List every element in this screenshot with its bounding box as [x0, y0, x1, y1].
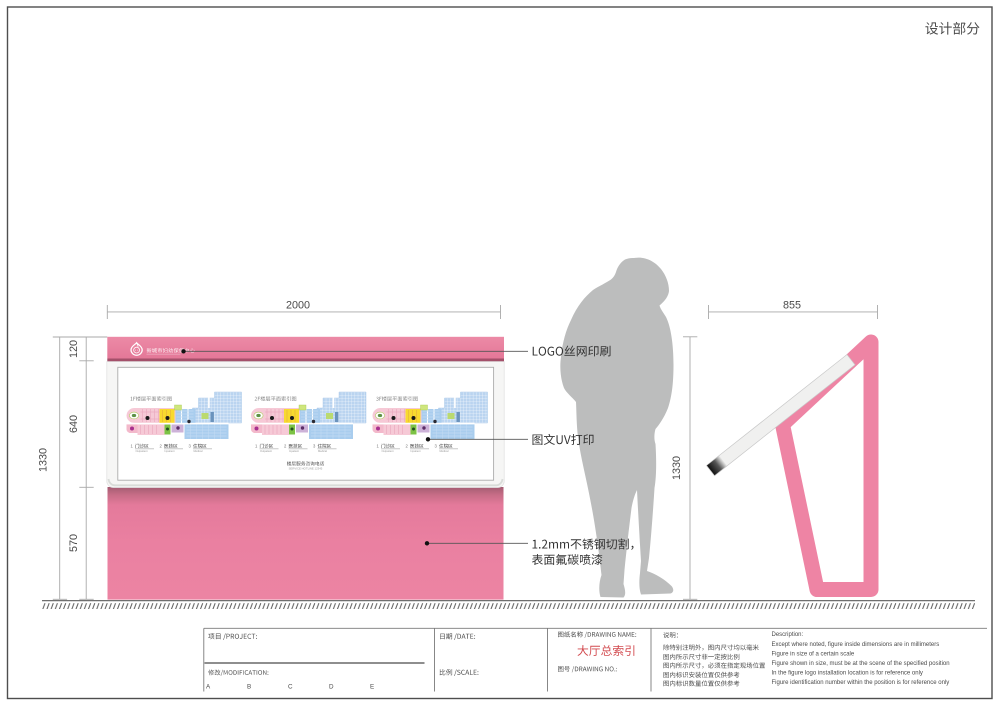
svg-text:Description:: Description: — [772, 632, 804, 638]
svg-text:2000: 2000 — [286, 300, 310, 312]
svg-text:Medical: Medical — [440, 449, 449, 453]
svg-text:Figure in size of a certain sc: Figure in size of a certain scale — [772, 652, 855, 658]
svg-text:855: 855 — [783, 300, 801, 312]
svg-text:1330: 1330 — [671, 456, 683, 480]
svg-text:Except where noted, figure ins: Except where noted, figure inside dimens… — [772, 642, 940, 648]
svg-text:SERVICE HOTLINE 12345: SERVICE HOTLINE 12345 — [289, 466, 323, 470]
svg-text:Figure shown in size, must be: Figure shown in size, must be at the sce… — [772, 661, 950, 667]
svg-text:Outpatient: Outpatient — [382, 449, 394, 453]
svg-text:640: 640 — [68, 415, 80, 433]
svg-text:Figure identification number w: Figure identification number within the … — [772, 680, 950, 686]
svg-text:B: B — [247, 683, 251, 690]
svg-text:Medical: Medical — [318, 449, 327, 453]
svg-text:570: 570 — [68, 534, 80, 552]
svg-text:Outpatient: Outpatient — [136, 449, 148, 453]
svg-text:1330: 1330 — [38, 448, 50, 472]
svg-text:D: D — [329, 683, 334, 690]
svg-text:120: 120 — [68, 340, 80, 358]
svg-text:Inpatient: Inpatient — [411, 449, 421, 453]
svg-text:Inpatient: Inpatient — [289, 449, 299, 453]
svg-text:Inpatient: Inpatient — [165, 449, 175, 453]
svg-text:E: E — [370, 683, 374, 690]
svg-text:In the figure logo installatio: In the figure logo installation location… — [772, 670, 923, 676]
svg-text:C: C — [288, 683, 293, 690]
svg-text:A: A — [206, 683, 211, 690]
svg-text:Medical: Medical — [194, 449, 203, 453]
svg-text:Outpatient: Outpatient — [260, 449, 272, 453]
